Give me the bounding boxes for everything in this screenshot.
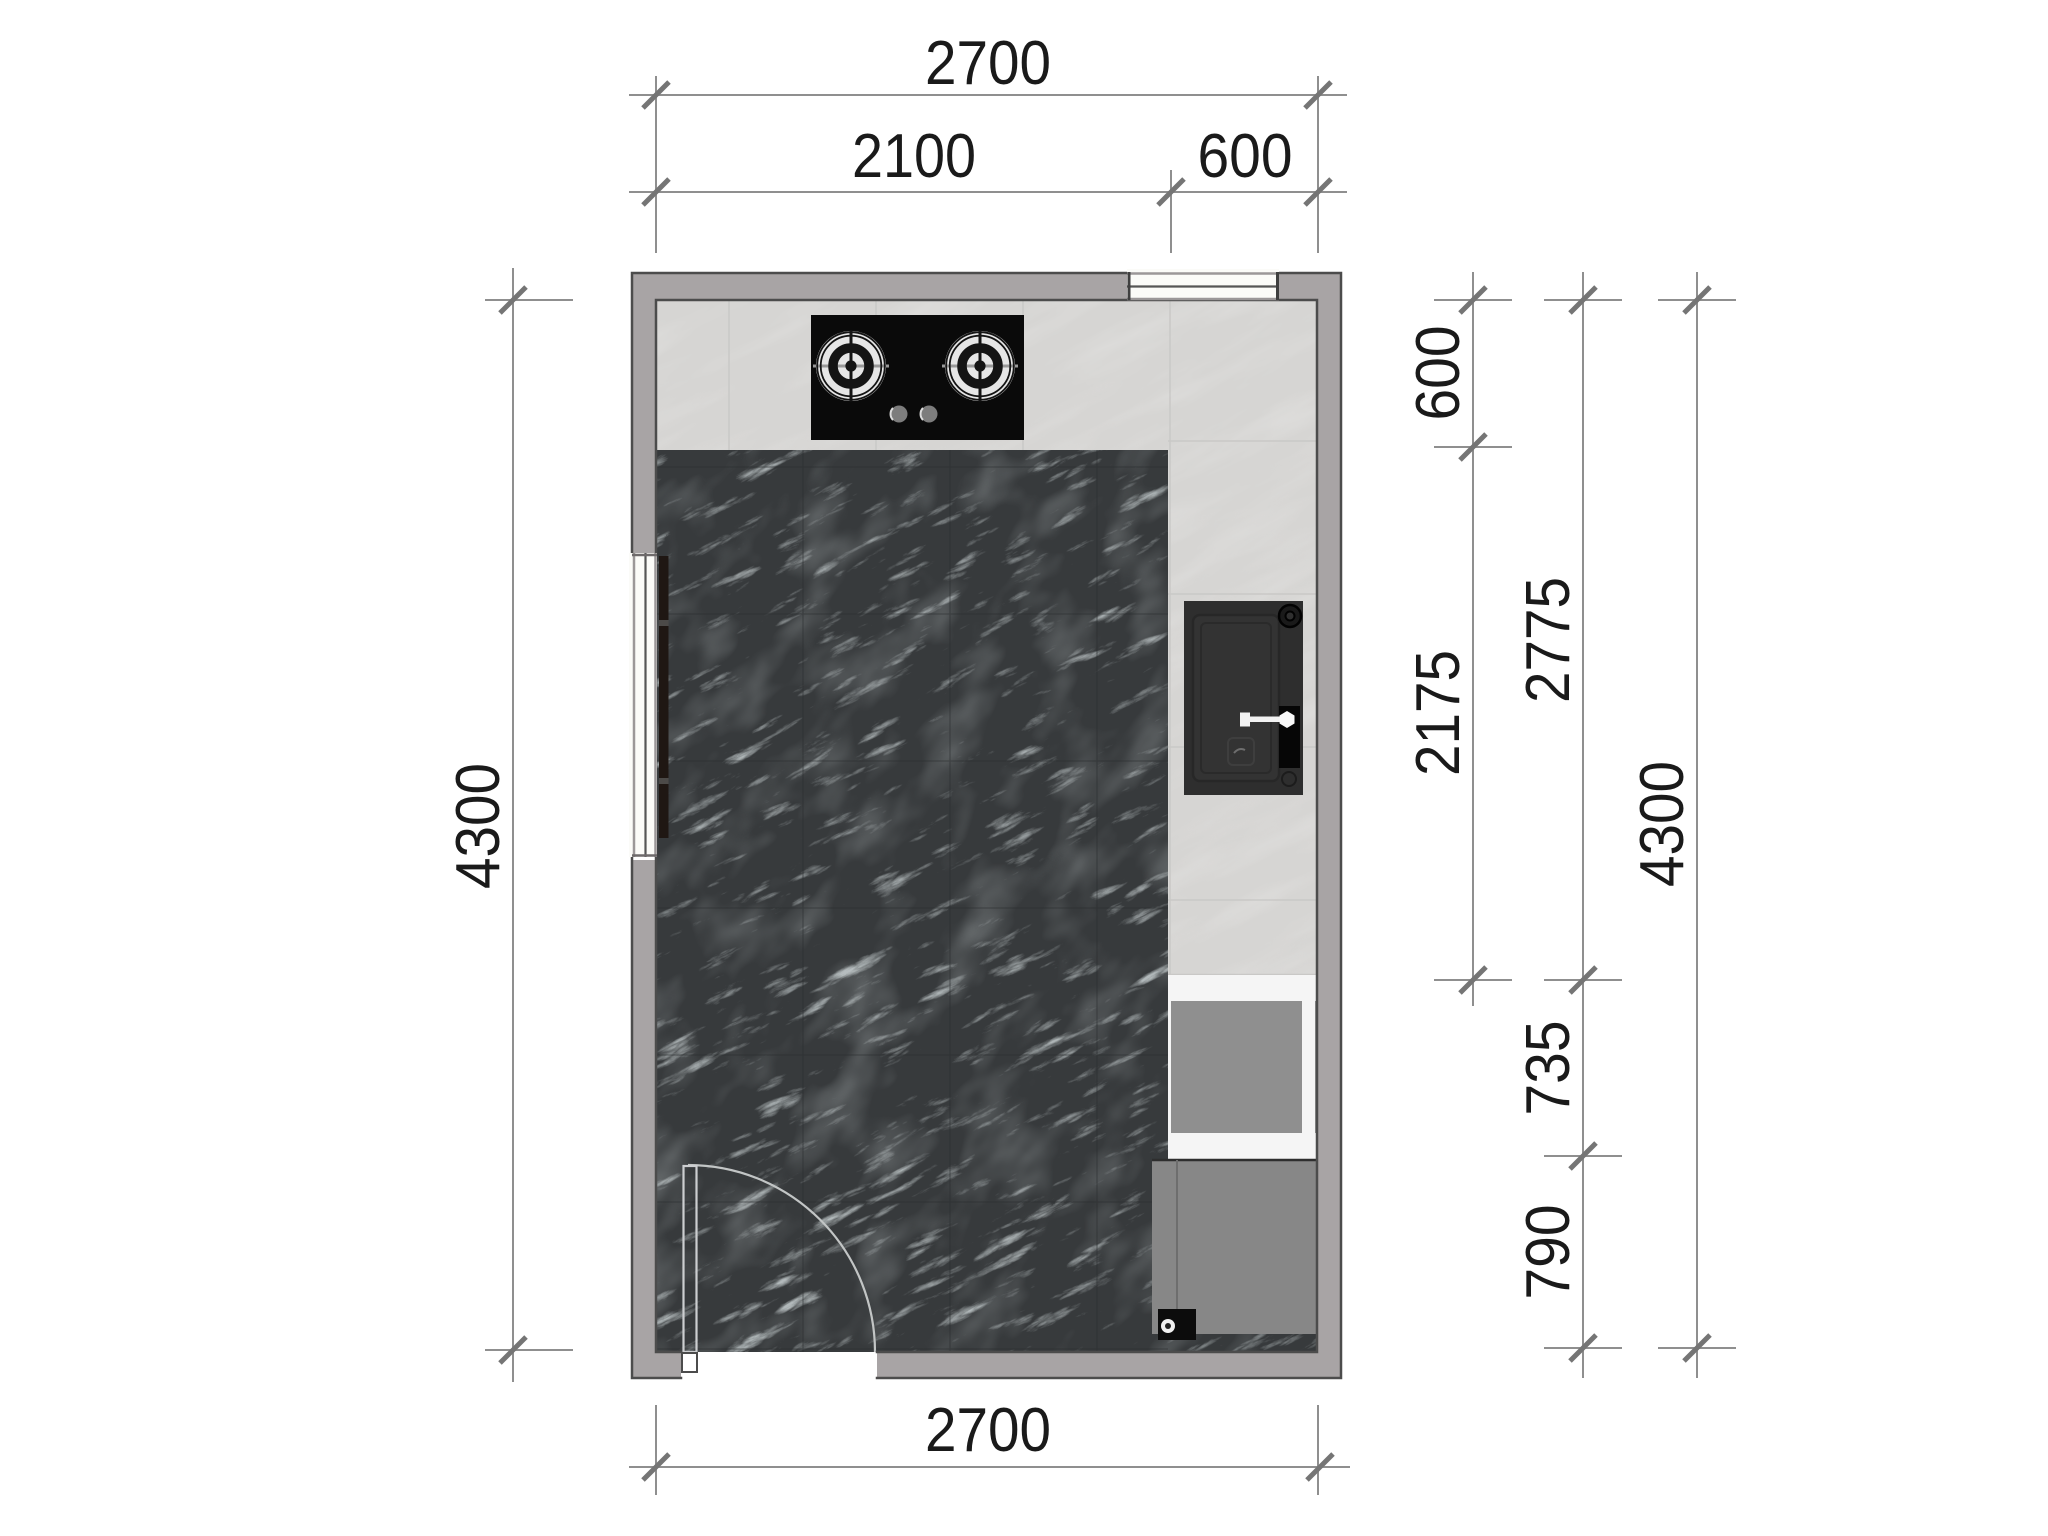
svg-text:600: 600 [1198,122,1293,191]
svg-text:2775: 2775 [1514,577,1583,703]
svg-text:600: 600 [1404,326,1473,421]
svg-text:790: 790 [1514,1205,1583,1300]
svg-text:4300: 4300 [444,763,513,889]
svg-text:735: 735 [1514,1021,1583,1116]
svg-text:2700: 2700 [925,1396,1051,1465]
svg-text:2175: 2175 [1404,650,1473,776]
svg-text:4300: 4300 [1628,761,1697,887]
svg-text:2700: 2700 [925,29,1051,98]
svg-text:2100: 2100 [852,122,976,191]
